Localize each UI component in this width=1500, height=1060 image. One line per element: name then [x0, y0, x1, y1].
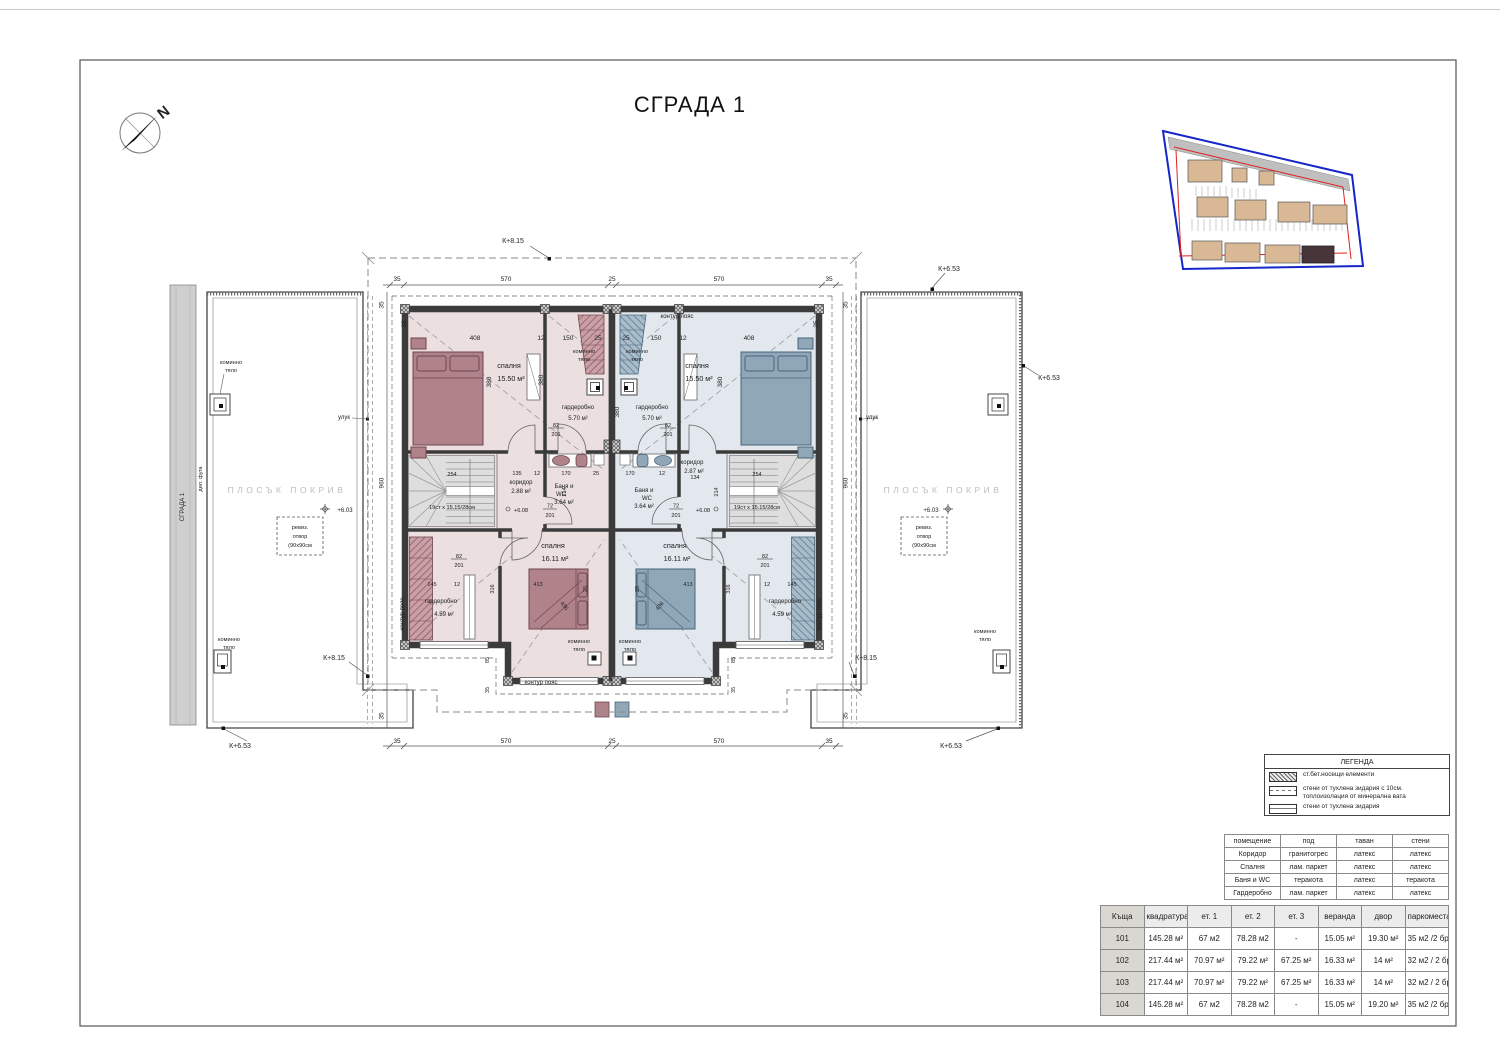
dim-label: 170 — [561, 471, 570, 477]
table-row: 101145.28 м²67 м278.28 м2-15.05 м²19.30 … — [1101, 928, 1449, 950]
drawing-shape — [853, 675, 857, 679]
chimney-label: тяло — [578, 357, 590, 363]
table-cell: латекс — [1393, 887, 1449, 900]
table-header-cell: паркоместа — [1405, 906, 1449, 928]
dim-label: 35 — [485, 687, 491, 693]
table-row: Къщаквадратурает. 1ет. 2ет. 3верандадвор… — [1101, 906, 1449, 928]
dim-label: 201 — [760, 563, 769, 569]
table-header-cell: веранда — [1318, 906, 1362, 928]
table-cell: Спалня — [1225, 861, 1281, 874]
level-608: +6.08 — [696, 508, 710, 514]
drawing-shape — [1225, 243, 1260, 262]
chimney-label: коминно — [619, 639, 641, 645]
dim-label: 135 — [512, 471, 521, 477]
stairs-spec: 19ст х 15.15/28см — [734, 505, 780, 511]
level-k653: К+6.53 — [940, 743, 962, 750]
dim-label: 150 — [651, 335, 662, 342]
drawing-shape — [1000, 665, 1004, 669]
left-flat-roof — [207, 292, 413, 728]
flat-roof-label-left: ПЛОСЪК ПОКРИВ — [228, 485, 347, 495]
drawing-shape — [966, 729, 997, 741]
drawing-shape — [1313, 205, 1347, 224]
table-row: Гардеробнолам. паркетлатекслатекс — [1225, 887, 1449, 900]
drawing-shape — [1259, 171, 1274, 185]
dim-label: 254 — [447, 472, 456, 478]
drawing-shape — [1192, 241, 1222, 260]
drawing-shape — [1265, 245, 1300, 263]
plan-canvas: N — [0, 0, 1500, 1060]
dim-label: 570 — [501, 276, 512, 283]
legend-item-label: стени от тухлена зидария — [1303, 803, 1380, 811]
table-header-cell: двор — [1362, 906, 1406, 928]
table-header-cell: помещение — [1225, 835, 1281, 848]
dim-label: 408 — [470, 335, 481, 342]
dim-label: 35 — [843, 712, 850, 720]
room-area-wardrobe-top-left: 5.70 м² — [568, 416, 587, 422]
room-label-bedroom-top-right: спалня — [685, 361, 709, 370]
drawing-shape — [207, 292, 413, 728]
chimney-label: тяло — [979, 637, 991, 643]
revision-opening-label: ревиз. — [292, 525, 309, 531]
dim-label: 413 — [683, 582, 692, 588]
drawing-shape — [931, 288, 935, 292]
drawing-shape — [997, 654, 1007, 666]
room-area-bedroom-top-right: 15.50 м² — [685, 374, 713, 383]
legend-item-label: ст.бет.носещи елементи — [1303, 771, 1374, 779]
dim-label: 25 — [583, 586, 589, 592]
level-k653: К+6.53 — [1038, 375, 1060, 382]
drawing-shape — [1024, 366, 1038, 375]
legend-item: ст.бет.носещи елементи — [1265, 769, 1449, 783]
drawing-shape — [548, 257, 552, 261]
level-k815: К+8.15 — [502, 238, 524, 245]
room-label-bath-left: WC — [556, 492, 567, 498]
table-cell: 217.44 м² — [1144, 950, 1188, 972]
dim-label: 35 — [393, 738, 401, 745]
table-row: 102217.44 м²70.97 м²79.22 м²67.25 м²16.3… — [1101, 950, 1449, 972]
table-cell: - — [1275, 928, 1319, 950]
table-cell: 15.05 м² — [1318, 994, 1362, 1016]
chimney-label: коминно — [626, 349, 648, 355]
dim-label: 380 — [614, 406, 621, 417]
level-k653: К+6.53 — [938, 266, 960, 273]
dim-label: 960 — [379, 477, 386, 488]
table-cell: 15.05 м² — [1318, 928, 1362, 950]
table-row: помещениеподтаванстени — [1225, 835, 1449, 848]
dim-label: 12 — [679, 335, 687, 342]
table-cell: 70.97 м² — [1188, 950, 1232, 972]
table-row: 103217.44 м²70.97 м²79.22 м²67.25 м²16.3… — [1101, 972, 1449, 994]
site-current-building-highlight — [1302, 246, 1334, 263]
chimney-label: коминно — [568, 639, 590, 645]
table-cell: 67 м2 — [1188, 994, 1232, 1016]
room-area-corridor-left: 2.88 м² — [511, 489, 530, 495]
table-row: Баня и WCтеракоталатекстеракота — [1225, 874, 1449, 887]
drawing-shape — [121, 116, 157, 151]
table-cell: 16.33 м² — [1318, 950, 1362, 972]
contour-belt-label: контур пояс — [817, 598, 823, 631]
table-cell: 79.22 м² — [1231, 950, 1275, 972]
dim-label: 145 — [787, 582, 796, 588]
level-608: +6.08 — [514, 508, 528, 514]
room-label-bath-right: WC — [642, 496, 653, 502]
chimney-label: тяло — [573, 647, 585, 653]
chimney-label: коминно — [974, 629, 996, 635]
table-cell: лам. паркет — [1281, 861, 1337, 874]
table-cell: 145.28 м² — [1144, 928, 1188, 950]
table-row: Спалнялам. паркетлатекслатекс — [1225, 861, 1449, 874]
dim-label: 145 — [427, 582, 436, 588]
dim-label: 380 — [717, 376, 724, 387]
dim-label: 25 — [593, 471, 599, 477]
level-k653: К+6.53 — [229, 743, 251, 750]
brick-insulation-symbol — [1269, 786, 1297, 796]
room-area-bedroom-top-left: 15.50 м² — [497, 374, 525, 383]
stairs-spec: 19ст х 15.15/28см — [429, 505, 475, 511]
drawing-sheet-page: { "title": "СГРАДА 1", "compass": {"nort… — [0, 0, 1500, 1060]
table-cell: латекс — [1337, 874, 1393, 887]
dim-label: 35 — [731, 687, 737, 693]
chimney-label: тяло — [223, 645, 235, 651]
drawing-shape — [224, 729, 247, 741]
contour-belt-label: контур пояс — [661, 314, 694, 320]
table-cell: 103 — [1101, 972, 1145, 994]
dim-label: 12 — [534, 471, 540, 477]
dim-label: 201 — [545, 513, 554, 519]
table-cell: 102 — [1101, 950, 1145, 972]
flat-roof-label-right: ПЛОСЪК ПОКРИВ — [884, 485, 1003, 495]
table-cell: Баня и WC — [1225, 874, 1281, 887]
table-cell: 101 — [1101, 928, 1145, 950]
table-cell: 35 м2 /2 бр. — [1405, 928, 1449, 950]
dim-label: 12 — [659, 471, 665, 477]
dim-label: 12 — [764, 582, 770, 588]
drawing-shape — [222, 727, 226, 731]
room-label-bath-right: Баня и — [635, 488, 654, 494]
brick-wall-symbol — [1269, 804, 1297, 814]
dim-label: 35 — [843, 301, 850, 309]
room-label-corridor-left: коридор — [510, 480, 534, 486]
room-area-wardrobe-bottom-left: 4.59 м² — [434, 612, 453, 618]
dim-label: 380 — [538, 374, 545, 385]
room-label-wardrobe-bottom-left: гардеробно — [425, 599, 458, 605]
chimney-label: тяло — [225, 368, 237, 374]
table-cell: 67 м2 — [1188, 928, 1232, 950]
north-compass: N — [120, 103, 173, 153]
dim-label: 35 — [379, 712, 386, 720]
table-cell: 79.22 м² — [1231, 972, 1275, 994]
table-cell: 16.33 м² — [1318, 972, 1362, 994]
room-label-bath-left: Баня и — [555, 484, 574, 490]
drawing-shape — [997, 727, 1001, 731]
table-cell: Коридор — [1225, 848, 1281, 861]
room-area-wardrobe-bottom-right: 4.59 м² — [772, 612, 791, 618]
chimney-label: коминно — [220, 360, 242, 366]
table-row: 104145.28 м²67 м278.28 м2-15.05 м²19.20 … — [1101, 994, 1449, 1016]
drawing-shape — [859, 418, 862, 421]
drawing-shape — [1022, 364, 1026, 368]
north-label: N — [154, 103, 173, 123]
table-cell: латекс — [1337, 887, 1393, 900]
site-key-plan — [1163, 131, 1363, 269]
dim-label: 408 — [744, 335, 755, 342]
room-label-bedroom-bottom-right: спалня — [663, 541, 687, 550]
legend-item: стени от тухлена зидария — [1265, 801, 1449, 815]
chimney-label: тяло — [624, 647, 636, 653]
dim-label: 35 — [825, 738, 833, 745]
table-header-cell: под — [1281, 835, 1337, 848]
dim-label: 85 — [485, 657, 491, 663]
table-header-cell: ет. 1 — [1188, 906, 1232, 928]
drawing-shape — [1235, 200, 1266, 220]
dim-label: 380 — [486, 376, 493, 387]
table-header-cell: таван — [1337, 835, 1393, 848]
dim-label: 570 — [714, 276, 725, 283]
table-header-cell: стени — [1393, 835, 1449, 848]
table-header-cell: ет. 3 — [1275, 906, 1319, 928]
room-area-bedroom-bottom-left: 16.11 м² — [542, 554, 569, 563]
table-header-cell: Къща — [1101, 906, 1145, 928]
table-cell: 32 м2 / 2 бр. — [1405, 972, 1449, 994]
table-cell: латекс — [1337, 861, 1393, 874]
table-cell: 19.20 м² — [1362, 994, 1406, 1016]
table-cell: Гардеробно — [1225, 887, 1281, 900]
dim-label: 35 — [401, 320, 408, 328]
level-k815: К+8.15 — [855, 655, 877, 662]
table-cell: - — [1275, 994, 1319, 1016]
chimney-label: коминно — [218, 637, 240, 643]
drawing-shape — [1232, 168, 1247, 182]
dim-label: 25 — [608, 276, 616, 283]
finishes-table: помещениеподтаванстениКоридоргранитогрес… — [1224, 834, 1449, 900]
room-area-wardrobe-top-right: 5.70 м² — [642, 416, 661, 422]
drawing-shape — [1188, 160, 1222, 182]
dim-label: 35 — [379, 301, 386, 309]
table-header-cell: ет. 2 — [1231, 906, 1275, 928]
drawing-shape — [1278, 202, 1310, 222]
table-cell: 78.28 м2 — [1231, 994, 1275, 1016]
dilation-joint-label: дил. фуга — [198, 466, 204, 492]
table-cell: 35 м2 /2 бр. — [1405, 994, 1449, 1016]
dim-label: 254 — [752, 472, 761, 478]
concrete-hatch-symbol — [1269, 772, 1297, 782]
dim-label: 82 — [553, 423, 559, 429]
table-cell: 32 м2 / 2 бр. — [1405, 950, 1449, 972]
dim-label: 170 — [625, 471, 634, 477]
dim-label: 72 — [673, 504, 679, 510]
room-area-bath-right: 3.64 м² — [634, 504, 653, 510]
table-cell: лам. паркет — [1281, 887, 1337, 900]
dim-label: 214 — [714, 487, 720, 496]
dim-label: 35 — [813, 320, 820, 328]
table-cell: латекс — [1393, 861, 1449, 874]
dim-label: 35 — [825, 276, 833, 283]
dim-label: 150 — [563, 335, 574, 342]
dim-label: 201 — [551, 432, 560, 438]
contour-belt-label: контур пояс — [400, 598, 406, 631]
room-area-bedroom-bottom-right: 16.11 м² — [664, 554, 691, 563]
revision-opening-label: отвор — [917, 534, 932, 540]
table-header-cell: квадратура — [1144, 906, 1188, 928]
dim-label: 35 — [393, 276, 401, 283]
dim-label: 316 — [726, 584, 732, 593]
dim-label: 134 — [690, 475, 699, 481]
legend-title: ЛЕГЕНДА — [1265, 755, 1449, 769]
room-label-bedroom-top-left: спалня — [497, 361, 521, 370]
dim-label: 570 — [714, 738, 725, 745]
dim-label: 82 — [456, 554, 462, 560]
table-cell: 78.28 м2 — [1231, 928, 1275, 950]
dim-label: 570 — [501, 738, 512, 745]
dim-label: 82 — [665, 423, 671, 429]
table-cell: 67.25 м² — [1275, 972, 1319, 994]
revision-opening-label: (90х90см — [912, 543, 936, 549]
drawing-shape — [1197, 197, 1228, 217]
dim-label: 25 — [594, 335, 602, 342]
drawing-shape — [218, 654, 228, 666]
room-label-wardrobe-top-left: гардеробно — [562, 405, 595, 411]
table-cell: теракота — [1281, 874, 1337, 887]
table-cell: латекс — [1337, 848, 1393, 861]
revision-opening-label: (90х90см — [288, 543, 312, 549]
revision-opening-label: отвор — [293, 534, 308, 540]
table-cell: теракота — [1393, 874, 1449, 887]
drawing-shape — [221, 665, 225, 669]
table-cell: 70.97 м² — [1188, 972, 1232, 994]
dim-label: 82 — [762, 554, 768, 560]
gutter-label: улук — [338, 415, 350, 421]
room-label-wardrobe-top-right: гардеробно — [636, 405, 669, 411]
room-label-wardrobe-bottom-right: гардеробно — [769, 599, 802, 605]
dim-label: 413 — [533, 582, 542, 588]
dim-label: 25 — [622, 335, 630, 342]
dim-label: 25 — [635, 586, 641, 592]
dim-label: 316 — [490, 584, 496, 593]
drawing-shape — [219, 404, 223, 408]
level-k815: К+8.15 — [323, 655, 345, 662]
dim-label: 12 — [454, 582, 460, 588]
dim-label: 960 — [843, 477, 850, 488]
table-cell: 217.44 м² — [1144, 972, 1188, 994]
room-area-bath-left: 3.64 м² — [554, 500, 573, 506]
chimney-label: коминно — [573, 349, 595, 355]
table-cell: 19.30 м² — [1362, 928, 1406, 950]
table-row: Коридоргранитогреслатекслатекс — [1225, 848, 1449, 861]
dim-label: 201 — [454, 563, 463, 569]
legend-item: стени от тухлена зидария с 10см. топлоиз… — [1265, 783, 1449, 801]
dim-label: 201 — [671, 513, 680, 519]
legend: ЛЕГЕНДА ст.бет.носещи елементи стени от … — [1264, 754, 1450, 816]
dim-label: 85 — [731, 657, 737, 663]
dim-label: 25 — [608, 738, 616, 745]
dim-label: 201 — [663, 432, 672, 438]
legend-item-label: стени от тухлена зидария с 10см. топлоиз… — [1303, 785, 1443, 800]
room-label-bedroom-bottom-left: спалня — [541, 541, 565, 550]
drawing-shape — [530, 246, 549, 258]
dim-label: 72 — [547, 504, 553, 510]
table-cell: 67.25 м² — [1275, 950, 1319, 972]
dim-label: 12 — [537, 335, 545, 342]
drawing-shape — [997, 404, 1001, 408]
table-cell: гранитогрес — [1281, 848, 1337, 861]
table-cell: 104 — [1101, 994, 1145, 1016]
chimney-label: тяло — [631, 357, 643, 363]
room-label-corridor-right: коридор — [681, 460, 705, 466]
table-cell: латекс — [1393, 848, 1449, 861]
table-cell: 145.28 м² — [1144, 994, 1188, 1016]
gutter-label: улук — [866, 415, 878, 421]
room-area-corridor-right: 2.87 м² — [684, 469, 703, 475]
table-cell: 14 м² — [1362, 950, 1406, 972]
level-603: +6.03 — [337, 508, 353, 514]
level-603: +6.03 — [923, 508, 939, 514]
building-strip-label: СГРАДА 1 — [180, 492, 186, 521]
contour-belt-label: контур пояс — [525, 680, 558, 686]
revision-opening-label: ревиз. — [916, 525, 933, 531]
drawing-shape — [366, 675, 370, 679]
houses-table: Къщаквадратурает. 1ет. 2ет. 3верандадвор… — [1100, 905, 1449, 1016]
table-cell: 14 м² — [1362, 972, 1406, 994]
drawing-shape — [932, 273, 945, 288]
